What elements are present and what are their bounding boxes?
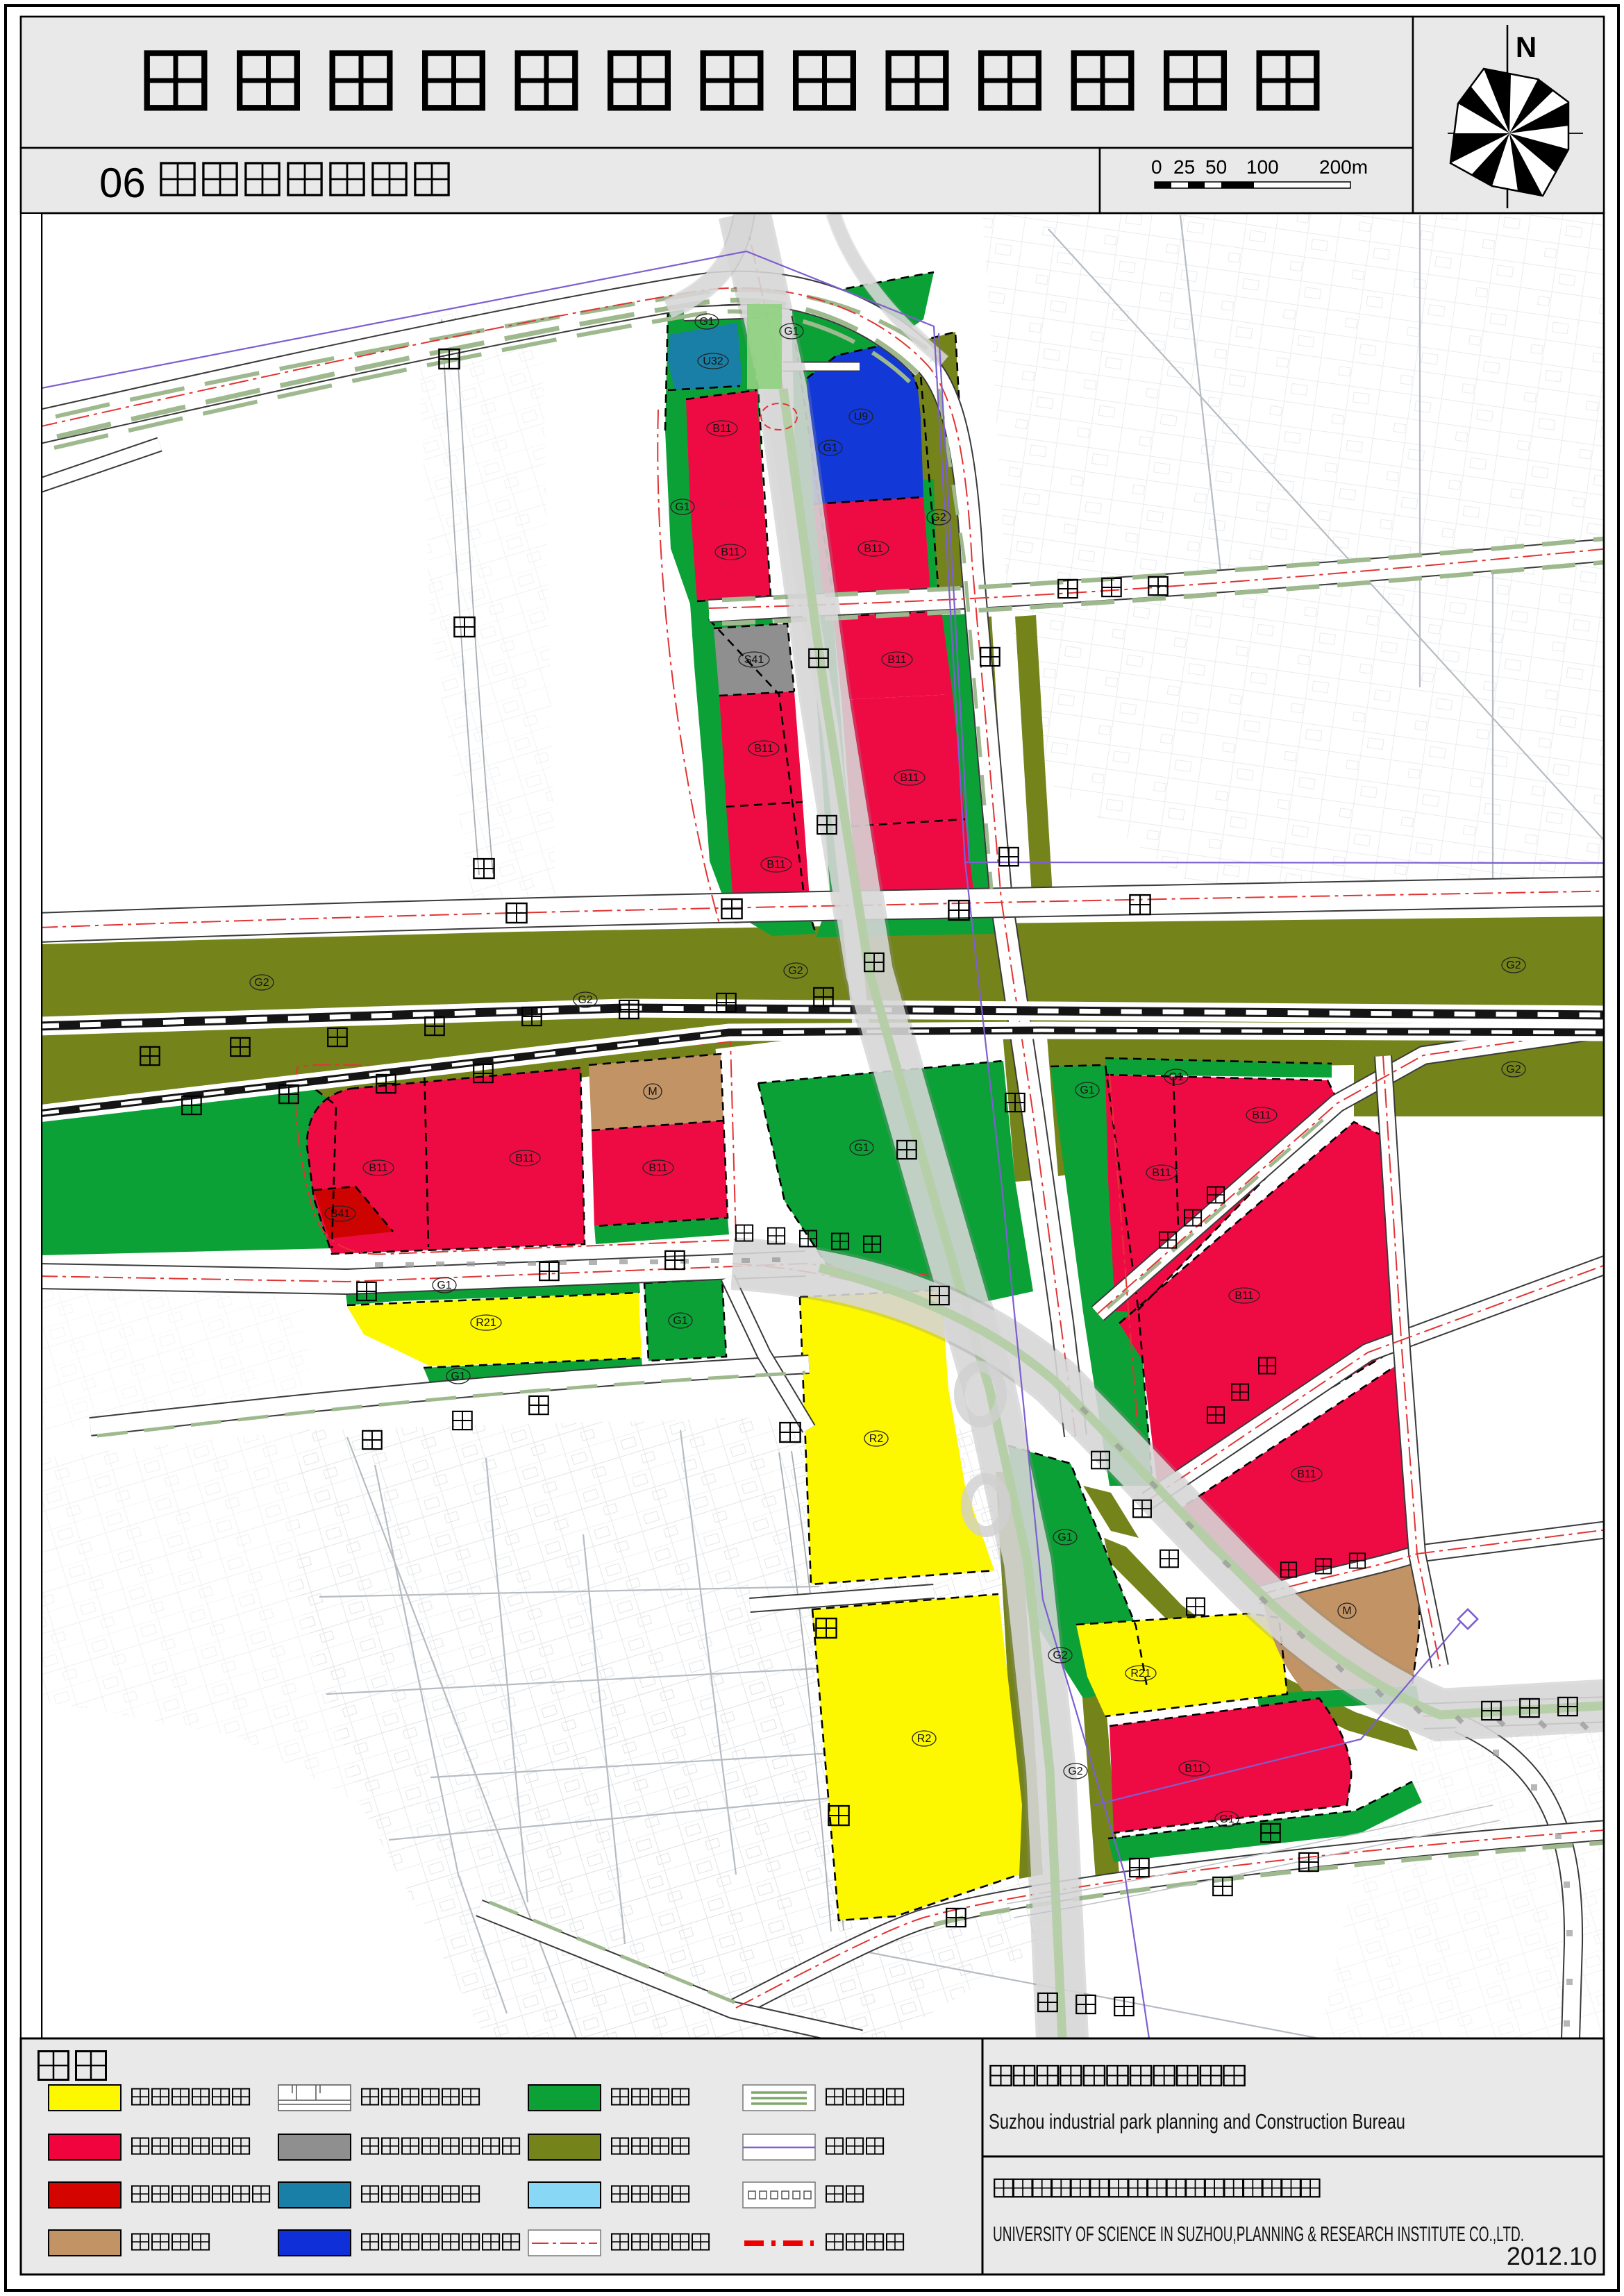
svg-text:G2: G2	[254, 977, 269, 989]
svg-text:G1: G1	[1080, 1084, 1094, 1096]
svg-text:25: 25	[1173, 156, 1195, 178]
svg-text:U32: U32	[703, 355, 723, 367]
svg-text:Suzhou industrial park plannin: Suzhou industrial park planning and Cons…	[989, 2109, 1405, 2134]
svg-text:50: 50	[1205, 156, 1227, 178]
svg-text:N: N	[1516, 31, 1537, 63]
svg-text:G1: G1	[1219, 1813, 1234, 1825]
svg-text:G1: G1	[699, 316, 714, 328]
svg-text:G2: G2	[578, 994, 592, 1006]
svg-text:100: 100	[1246, 156, 1279, 178]
svg-text:G1: G1	[823, 442, 837, 454]
svg-text:B11: B11	[648, 1162, 667, 1174]
svg-text:B11: B11	[864, 543, 882, 555]
svg-text:G1: G1	[1169, 1071, 1183, 1083]
svg-text:R2: R2	[917, 1733, 932, 1745]
svg-text:S41: S41	[744, 654, 764, 666]
svg-text:G1: G1	[675, 501, 689, 513]
svg-text:B11: B11	[1297, 1468, 1316, 1480]
svg-text:G1: G1	[784, 326, 798, 337]
svg-text:B11: B11	[767, 859, 785, 871]
svg-text:G2: G2	[1506, 960, 1521, 971]
svg-text:M: M	[1342, 1605, 1351, 1617]
svg-text:B11: B11	[887, 654, 906, 666]
svg-text:B11: B11	[900, 772, 919, 784]
svg-text:M: M	[648, 1086, 657, 1098]
svg-text:UNIVERSITY OF SCIENCE IN SUZH: UNIVERSITY OF SCIENCE IN SUZHOU,PLANNING…	[993, 2222, 1524, 2246]
svg-text:G1: G1	[1057, 1532, 1072, 1543]
svg-text:B11: B11	[754, 743, 773, 755]
svg-text:200m: 200m	[1319, 156, 1368, 178]
svg-text:G1: G1	[437, 1280, 451, 1291]
svg-text:B11: B11	[1252, 1109, 1271, 1121]
svg-text:B11: B11	[1152, 1167, 1171, 1179]
svg-text:0: 0	[1151, 156, 1162, 178]
svg-text:G1: G1	[673, 1315, 687, 1327]
svg-text:B11: B11	[712, 423, 731, 435]
svg-text:G2: G2	[1068, 1766, 1082, 1777]
svg-text:R2: R2	[869, 1433, 884, 1445]
svg-text:G2: G2	[1053, 1650, 1067, 1661]
svg-text:06: 06	[99, 160, 146, 206]
svg-text:B41: B41	[330, 1208, 351, 1220]
svg-text:G1: G1	[854, 1142, 869, 1154]
svg-text:B11: B11	[721, 546, 739, 558]
svg-text:2012.10: 2012.10	[1507, 2242, 1597, 2270]
svg-text:U9: U9	[854, 411, 869, 423]
svg-text:B11: B11	[1184, 1763, 1203, 1775]
svg-text:G2: G2	[931, 512, 946, 523]
svg-text:R21: R21	[1130, 1668, 1150, 1679]
svg-text:B11: B11	[515, 1153, 534, 1164]
svg-text:B11: B11	[369, 1162, 387, 1174]
svg-text:G1: G1	[451, 1371, 465, 1382]
svg-text:R21: R21	[476, 1317, 496, 1329]
svg-text:B11: B11	[1234, 1290, 1253, 1302]
svg-text:G2: G2	[788, 965, 803, 977]
svg-text:G2: G2	[1506, 1064, 1521, 1075]
